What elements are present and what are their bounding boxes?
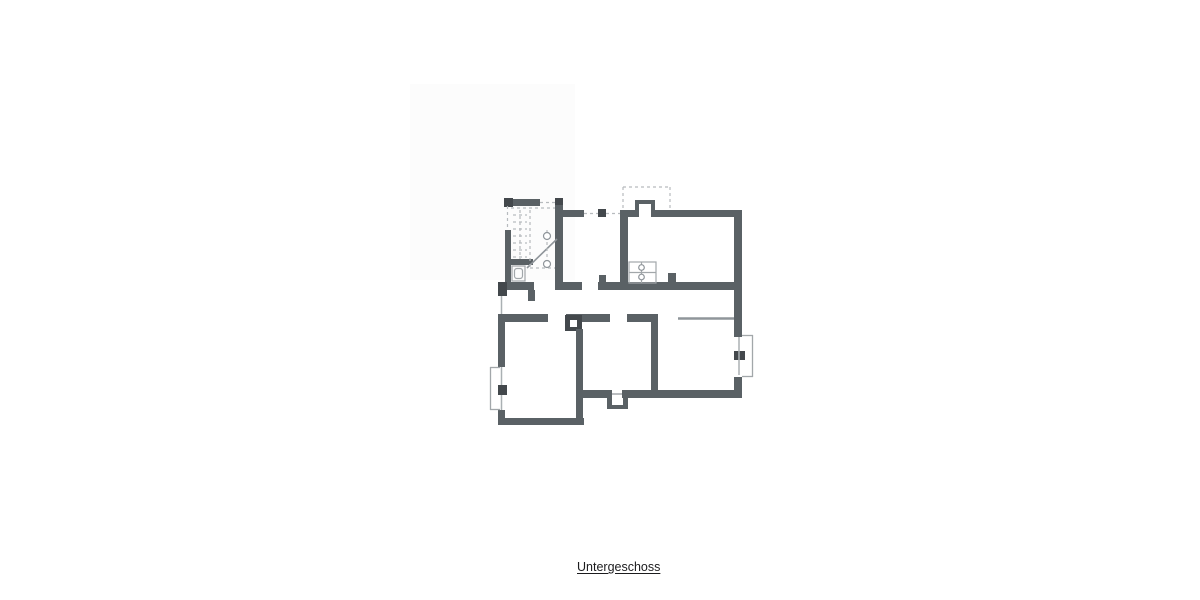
wall-stairhall-east bbox=[555, 198, 563, 290]
wall-corner-west bbox=[498, 282, 507, 296]
stair-anchor-bottom bbox=[544, 261, 551, 268]
wall-cap-stairhall bbox=[555, 198, 563, 205]
wall-stub-wc bbox=[528, 290, 535, 301]
wall-east-mid bbox=[734, 290, 742, 337]
floor-label: Untergeschoss bbox=[577, 560, 660, 574]
window-pier-west bbox=[498, 385, 507, 395]
wall-cap-top-left bbox=[504, 198, 513, 207]
wall-pier-up bbox=[668, 273, 676, 283]
wall-west-upper bbox=[498, 322, 505, 367]
step-bottom bbox=[607, 405, 628, 409]
wall-mid-upper-a bbox=[507, 282, 534, 290]
wall-east-upper bbox=[734, 210, 742, 290]
wall-mid-lower-a bbox=[498, 314, 548, 322]
wall-midroom-east bbox=[620, 210, 628, 290]
stair-anchor-top bbox=[544, 233, 551, 240]
wall-south-left bbox=[498, 418, 584, 425]
wall-leftroom-east bbox=[576, 329, 583, 425]
door-post bbox=[598, 209, 606, 217]
wall-mid-upper-b bbox=[555, 282, 582, 290]
wall-mid-upper-c bbox=[598, 282, 742, 290]
wall-top-mid-a bbox=[563, 210, 584, 217]
boiler-dial-top bbox=[639, 265, 645, 271]
drawing-sheet: Untergeschoss bbox=[0, 0, 1200, 600]
wall-center-south bbox=[651, 314, 658, 398]
background-shade bbox=[410, 84, 575, 280]
fixture-box-inner bbox=[570, 320, 577, 327]
wall-stair-west bbox=[505, 230, 511, 282]
wall-top-right bbox=[655, 210, 734, 217]
boiler-dial-bottom bbox=[639, 274, 645, 280]
wall-jamb-stub bbox=[599, 275, 606, 283]
chimney-right bbox=[651, 200, 655, 217]
floorplan-drawing bbox=[0, 0, 1200, 600]
wall-south-mid-b bbox=[622, 390, 742, 398]
wall-south-mid-a bbox=[583, 390, 612, 398]
